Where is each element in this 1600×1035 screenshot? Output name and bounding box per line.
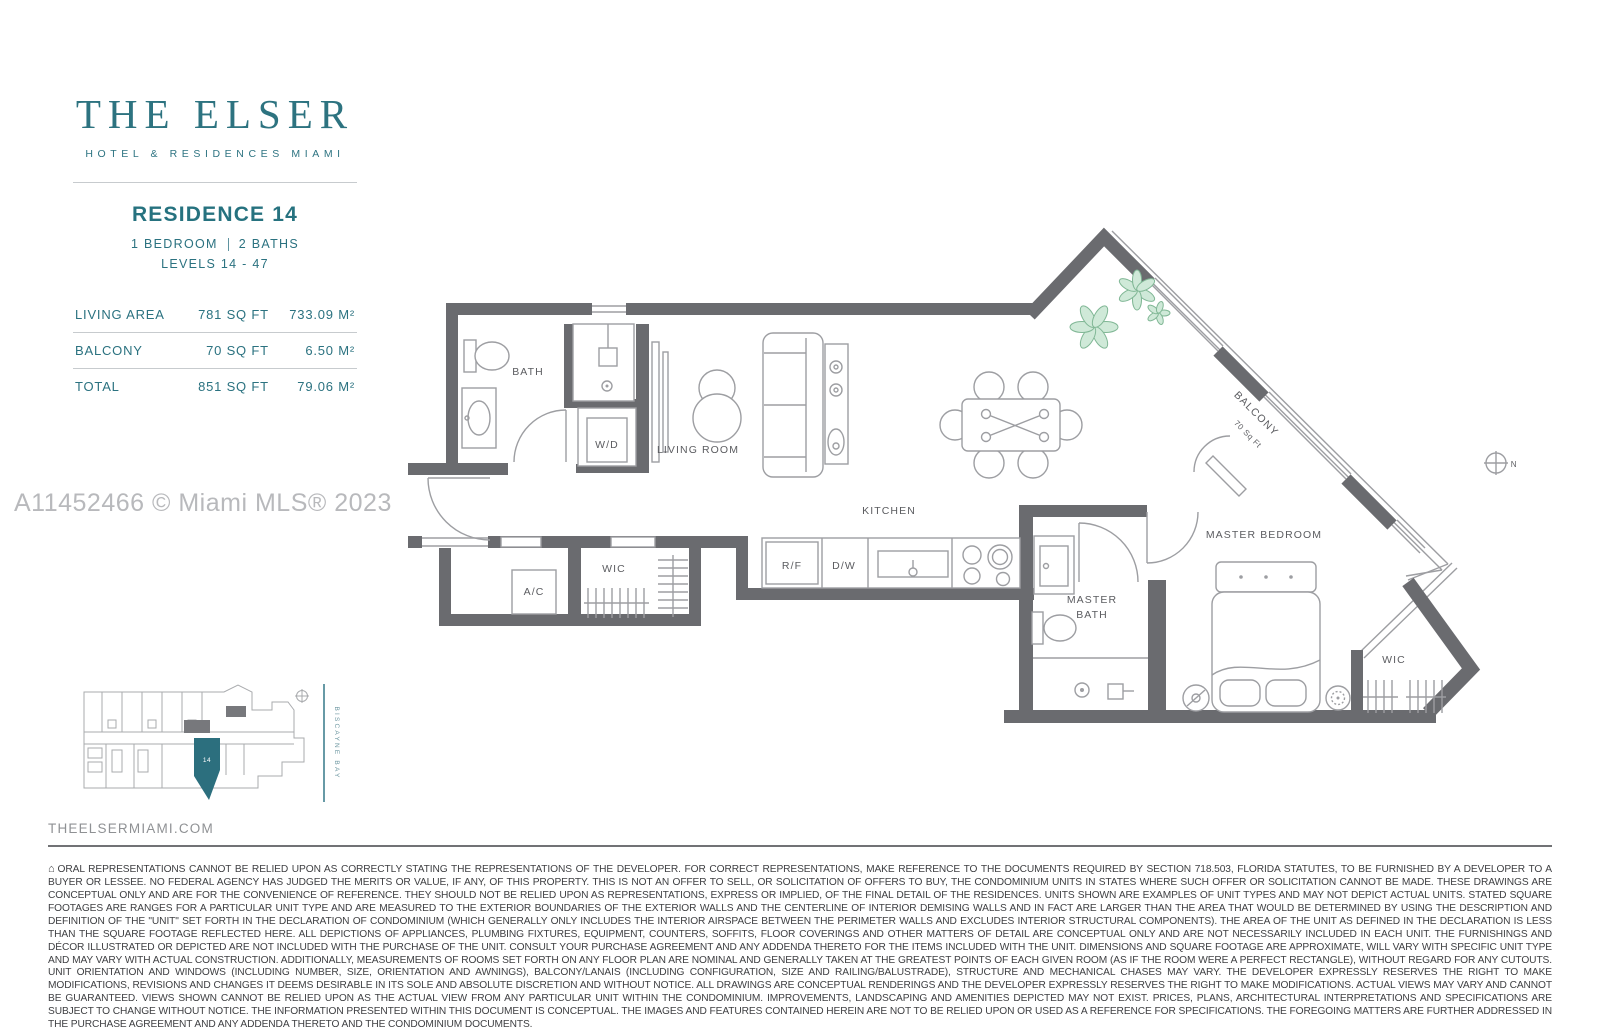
- sofa: [763, 333, 823, 477]
- balcony-railing: [1106, 231, 1448, 580]
- plant-icon: [1147, 301, 1170, 326]
- round-rug: [1326, 686, 1350, 710]
- page-title: RESIDENCE 14: [73, 203, 357, 227]
- shower: [573, 324, 634, 401]
- area-label: LIVING AREA: [75, 307, 183, 322]
- dining-set: [940, 372, 1082, 478]
- window: [592, 303, 626, 315]
- bed: [1212, 562, 1320, 712]
- room-label-kitchen: KITCHEN: [862, 505, 916, 517]
- area-sqm: 733.09 M²: [269, 307, 355, 322]
- master-bedroom-door: [1147, 512, 1198, 563]
- room-label-wic-hall: WIC: [602, 563, 626, 575]
- area-sqft: 851 SQ FT: [183, 379, 269, 394]
- balcony-door: [1194, 436, 1246, 496]
- footer-divider: [48, 845, 1552, 847]
- area-sqm: 6.50 M²: [269, 343, 355, 358]
- room-label-ac: A/C: [524, 586, 545, 598]
- biscayne-bay-label: BISCAYNE BAY: [333, 706, 340, 779]
- keyplan-unit-highlight: 14: [194, 738, 220, 800]
- bath-fixtures: [462, 340, 566, 462]
- console-table: [825, 344, 848, 464]
- legal-disclaimer: ⌂ORAL REPRESENTATIONS CANNOT BE RELIED U…: [48, 863, 1552, 1032]
- keyplan-core-block: [226, 706, 246, 717]
- entry-door: [422, 478, 490, 546]
- room-label-master-bath-1: MASTER: [1067, 594, 1117, 606]
- unit-levels: LEVELS 14 - 47: [73, 257, 357, 271]
- equal-housing-icon: ⌂: [48, 863, 55, 875]
- room-label-wd: W/D: [595, 439, 619, 451]
- room-label-wic-master: WIC: [1382, 654, 1406, 666]
- room-label-master-bedroom: MASTER BEDROOM: [1206, 529, 1322, 541]
- washer-dryer: [578, 408, 636, 466]
- bath-count: 2 BATHS: [239, 237, 299, 251]
- area-sqft: 781 SQ FT: [183, 307, 269, 322]
- area-label: TOTAL: [75, 379, 183, 394]
- master-closet-hangers: [1363, 680, 1446, 713]
- room-label-master-bath-2: BATH: [1076, 609, 1108, 621]
- table-row-total: TOTAL 851 SQ FT 79.06 M²: [73, 368, 357, 404]
- disclaimer-text: ORAL REPRESENTATIONS CANNOT BE RELIED UP…: [48, 864, 1552, 1030]
- website-url: THEELSERMIAMI.COM: [48, 821, 214, 836]
- room-label-living-room: LIVING ROOM: [657, 444, 739, 456]
- mls-watermark: A11452466 © Miami MLS® 2023: [14, 489, 392, 518]
- area-sqm: 79.06 M²: [269, 379, 355, 394]
- room-label-bath: BATH: [512, 366, 544, 378]
- table-row-balcony: BALCONY 70 SQ FT 6.50 M²: [73, 332, 357, 368]
- key-plan: 14 BISCAYNE BAY: [76, 680, 344, 808]
- room-label-dw: D/W: [832, 560, 856, 572]
- spec-divider: [228, 238, 229, 251]
- area-sqft: 70 SQ FT: [183, 343, 269, 358]
- unit-info-panel: THE ELSER HOTEL & RESIDENCES MIAMI RESID…: [73, 90, 357, 404]
- keyplan-unit-number: 14: [203, 757, 211, 764]
- compass-icon: N: [1484, 451, 1517, 475]
- area-label: BALCONY: [75, 343, 183, 358]
- side-tables: [693, 370, 741, 442]
- closet-hangers: [584, 555, 688, 618]
- unit-specs: 1 BEDROOM 2 BATHS: [73, 237, 357, 251]
- room-label-rf: R/F: [782, 560, 802, 572]
- brand-divider: [73, 182, 357, 183]
- compass-north-label: N: [1511, 460, 1517, 469]
- keyplan-compass-icon: [295, 689, 309, 703]
- bedroom-count: 1 BEDROOM: [131, 237, 218, 251]
- brand-subtitle: HOTEL & RESIDENCES MIAMI: [73, 148, 357, 160]
- brand-logo: THE ELSER: [73, 90, 357, 138]
- floor-plan: N BATH W/D LIVING ROOM KITCHEN A/C WIC R…: [406, 220, 1556, 745]
- keyplan-core-block: [184, 720, 210, 733]
- plant-icon: [1070, 303, 1118, 350]
- area-table: LIVING AREA 781 SQ FT 733.09 M² BALCONY …: [73, 297, 357, 404]
- table-row-living-area: LIVING AREA 781 SQ FT 733.09 M²: [73, 297, 357, 332]
- nightstand: [1183, 685, 1209, 711]
